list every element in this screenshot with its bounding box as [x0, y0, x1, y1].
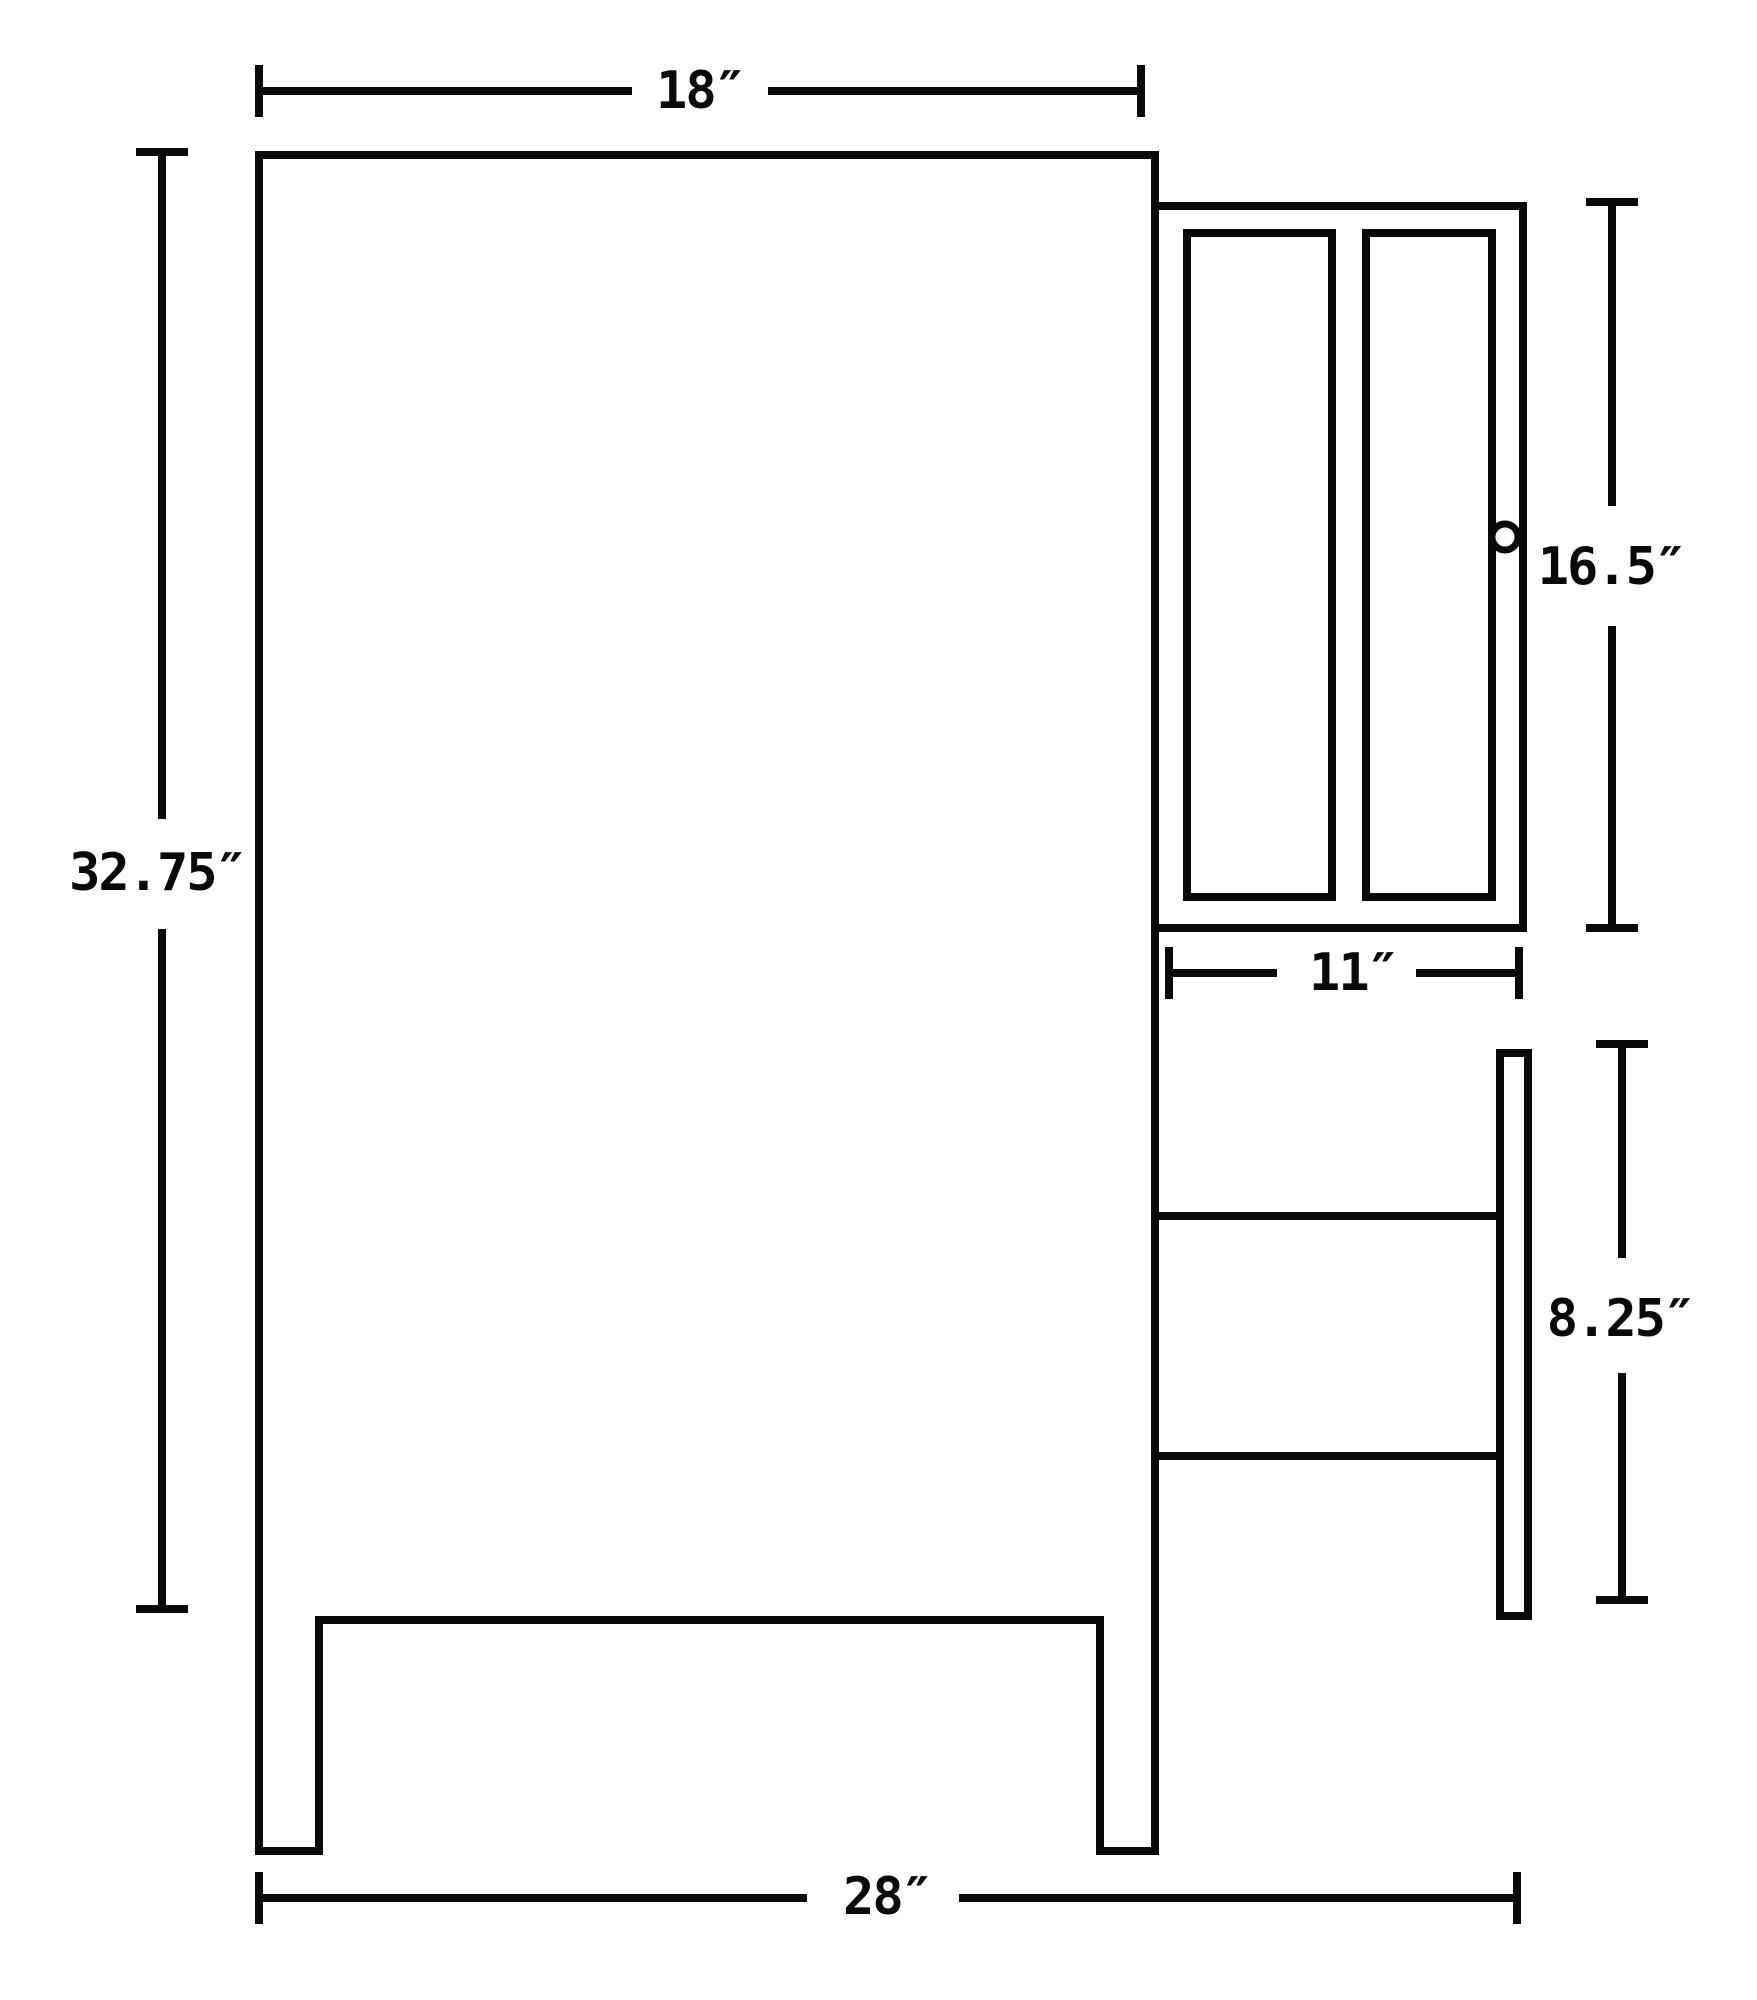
cabinet-left-door: [1187, 233, 1332, 897]
dim-label-left-height: 32.75″: [69, 843, 245, 903]
door-knob: [1492, 524, 1518, 550]
dimension-drawing-canvas: 18″ 32.75″ 16.5″ 11″ 8.25″ 28″: [0, 0, 1757, 2000]
dim-label-top-width: 18″: [656, 61, 744, 121]
drawer-side-panel: [1500, 1053, 1528, 1616]
vanity-side-outline: [259, 155, 1155, 1851]
wall-cabinet-outline: [1155, 206, 1523, 928]
dim-label-drawer-height: 8.25″: [1547, 1289, 1694, 1349]
dim-label-bottom-width: 28″: [843, 1867, 931, 1927]
dim-label-cabinet-height: 16.5″: [1538, 537, 1685, 597]
cabinet-dimension-diagram: 18″ 32.75″ 16.5″ 11″ 8.25″ 28″: [0, 0, 1757, 2000]
cabinet-right-door: [1366, 233, 1492, 897]
dim-label-cabinet-width: 11″: [1309, 943, 1397, 1003]
